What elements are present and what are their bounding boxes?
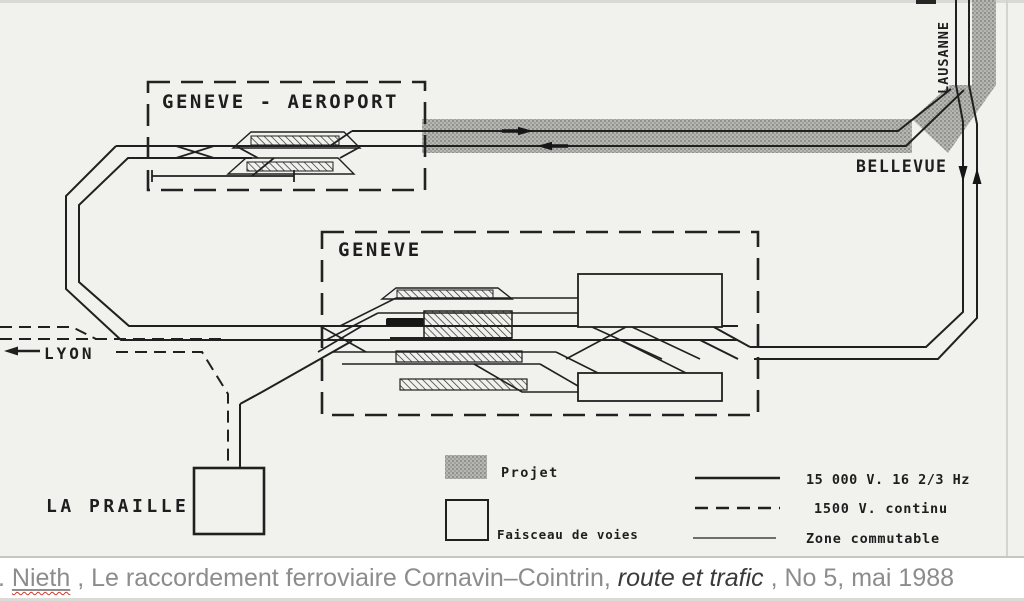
- scanned-figure: GENEVE - AEROPORT GENEVE BELLEVUE LYON L…: [0, 0, 1024, 556]
- legend-projet-label: Projet: [501, 465, 559, 481]
- lausanne-label: LAUSANNE: [936, 21, 952, 94]
- bellevue-label: BELLEVUE: [856, 157, 947, 176]
- faisceau-lower-box: [578, 373, 722, 401]
- caption-lead: .: [0, 564, 5, 592]
- caption-journal: route et trafic: [618, 564, 764, 592]
- caption-tail: , No 5, mai 1988: [771, 564, 954, 592]
- geneva-label: GENEVE: [338, 239, 422, 261]
- legend-faisceau-label: Faisceau de voies: [497, 527, 639, 542]
- figure-caption: . Nieth , Le raccordement ferroviaire Co…: [0, 556, 1024, 601]
- la-praille-label: LA PRAILLE: [46, 496, 189, 517]
- legend-zone-label: Zone commutable: [806, 531, 940, 547]
- legend-1500-label: 1500 V. continu: [814, 501, 948, 517]
- caption-middle: , Le raccordement ferroviaire Cornavin–C…: [77, 564, 618, 592]
- lyon-label: LYON: [44, 344, 95, 363]
- caption-author: Nieth: [12, 564, 70, 592]
- scan-artifact: [916, 0, 936, 4]
- airport-label: GENEVE - AEROPORT: [162, 91, 399, 113]
- scan-top-edge: [0, 0, 1024, 3]
- faisceau-upper-box: [578, 274, 722, 327]
- legend-15000-label: 15 000 V. 16 2/3 Hz: [806, 472, 970, 488]
- legend-projet-swatch: [445, 455, 487, 479]
- page: GENEVE - AEROPORT GENEVE BELLEVUE LYON L…: [0, 0, 1024, 601]
- railway-diagram: GENEVE - AEROPORT GENEVE BELLEVUE LYON L…: [0, 0, 1024, 556]
- scan-right-edge: [1006, 0, 1008, 556]
